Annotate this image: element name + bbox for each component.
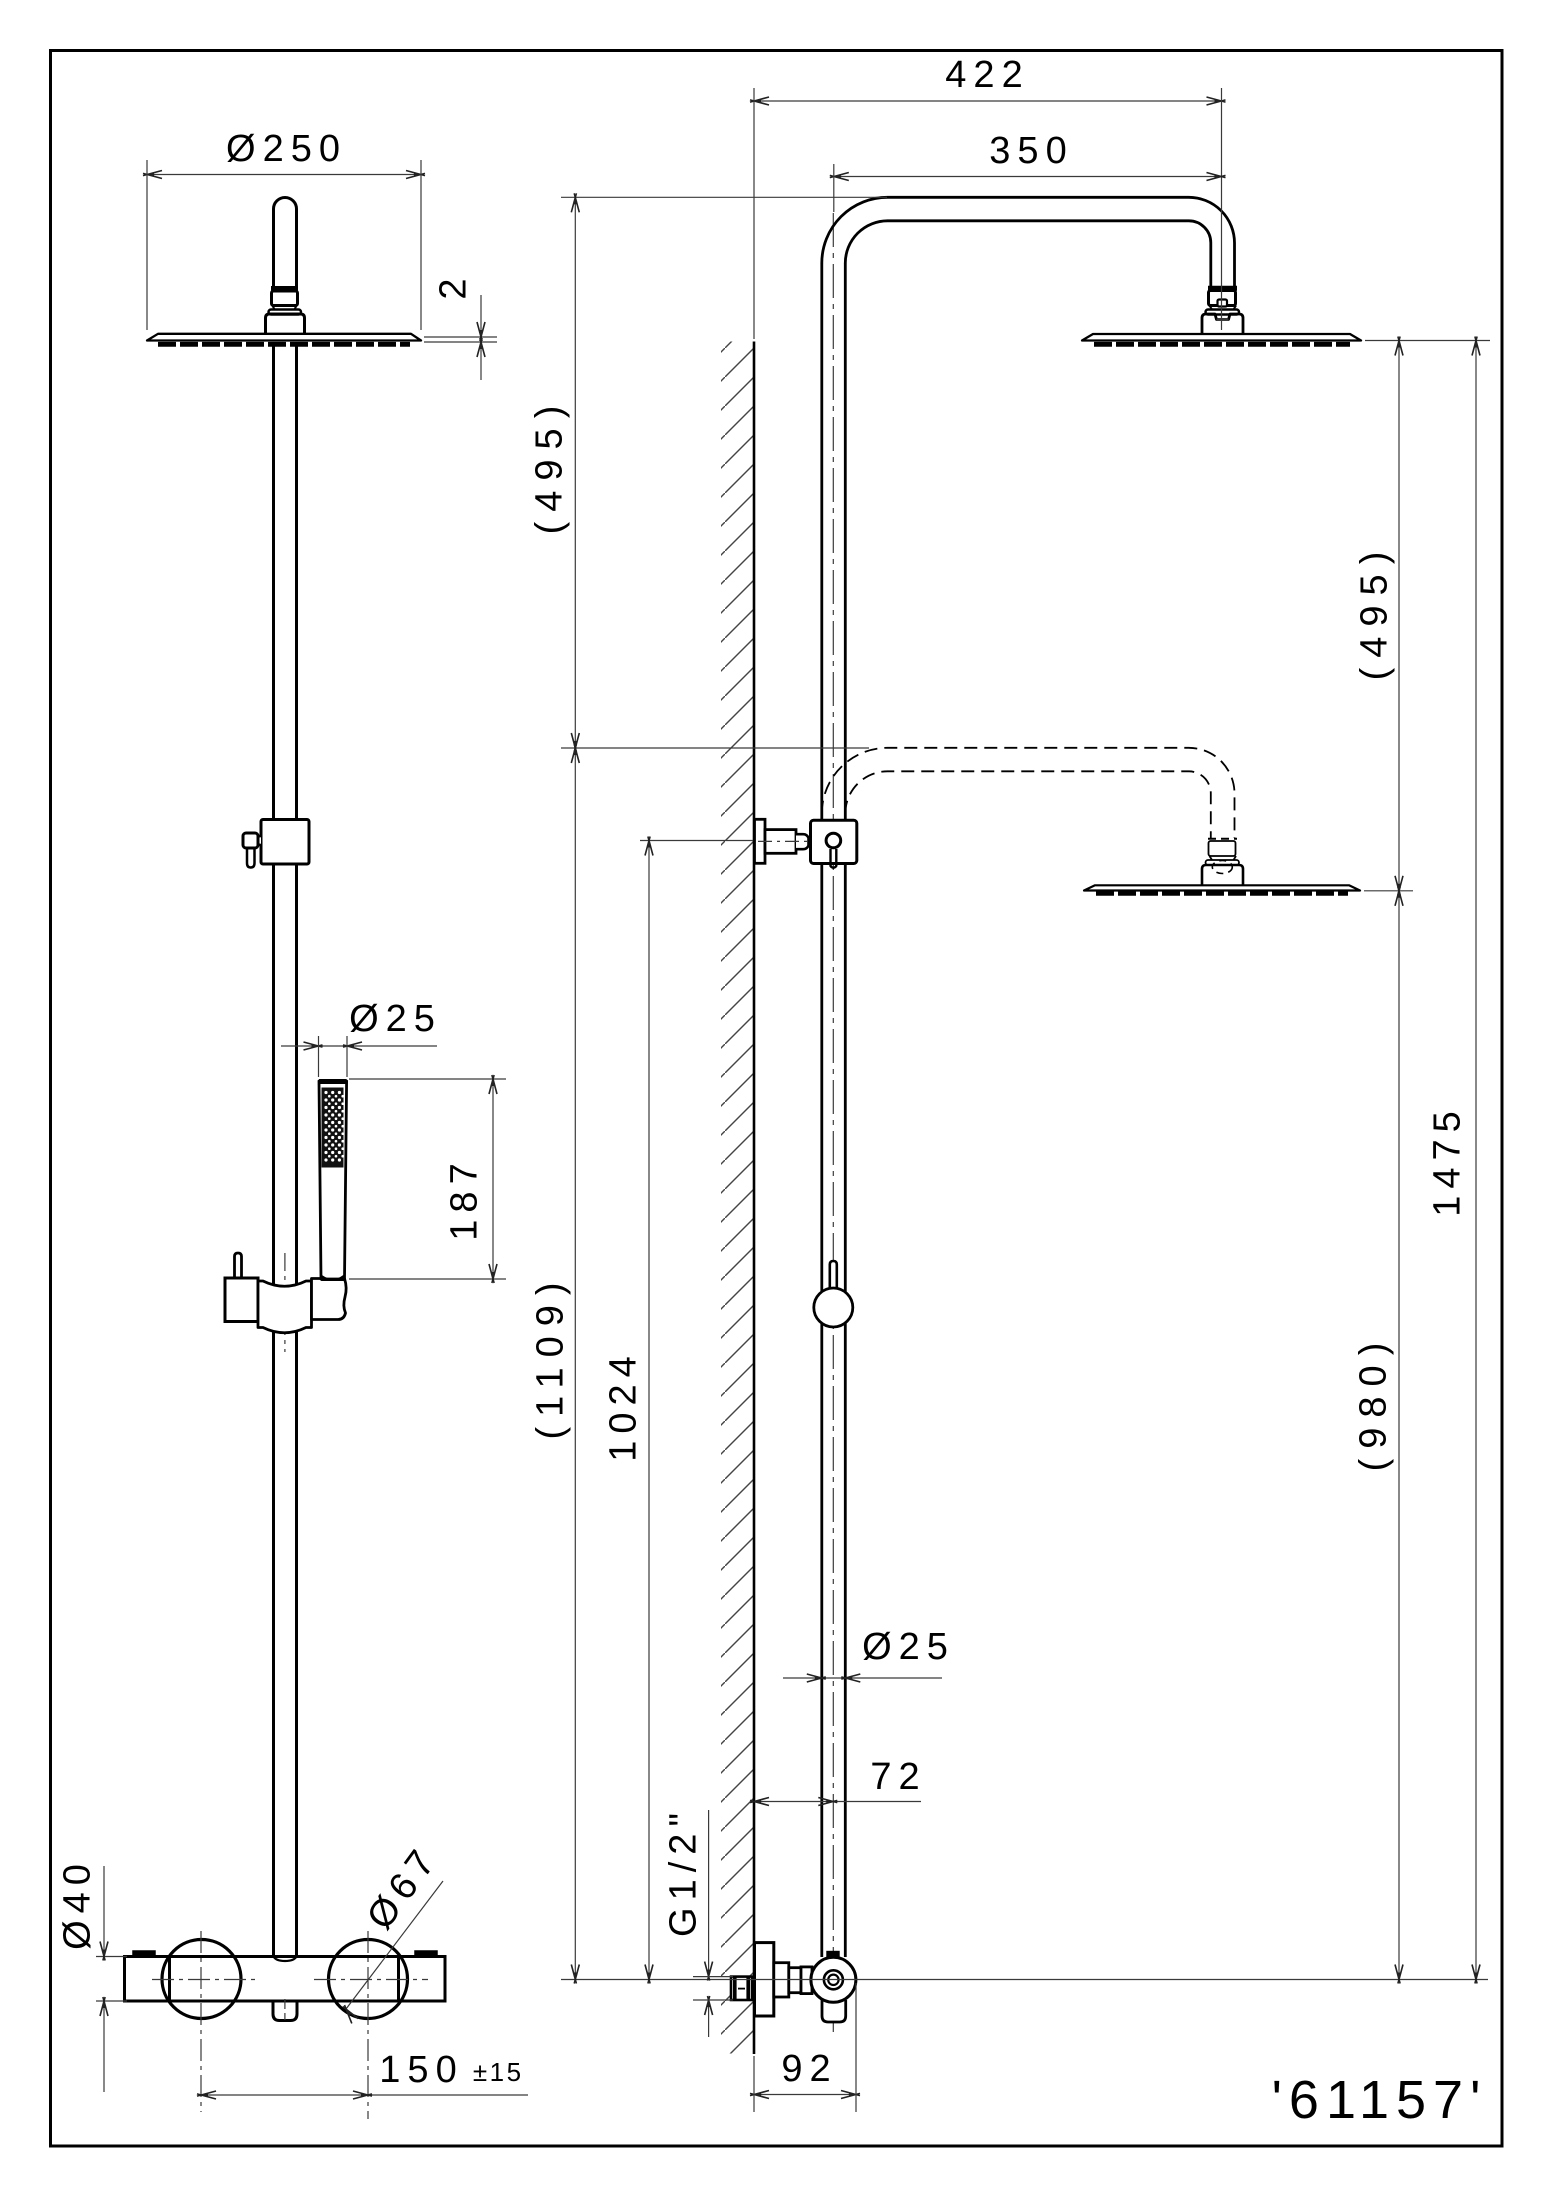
svg-text:Ø25: Ø25	[349, 998, 442, 1040]
svg-text:1475: 1475	[1427, 1104, 1469, 1217]
svg-text:2: 2	[433, 271, 475, 299]
svg-text:72: 72	[870, 1756, 926, 1798]
svg-text:150: 150	[379, 2049, 463, 2091]
svg-text:(495): (495)	[1354, 542, 1396, 681]
svg-text:1024: 1024	[603, 1349, 645, 1462]
svg-text:187: 187	[444, 1156, 486, 1240]
svg-text:350: 350	[989, 130, 1073, 172]
svg-text:Ø40: Ø40	[57, 1857, 99, 1950]
svg-text:Ø25: Ø25	[862, 1626, 955, 1668]
svg-text:92: 92	[781, 2048, 837, 2090]
svg-text:'61157': '61157'	[1272, 2070, 1488, 2130]
svg-text:Ø250: Ø250	[226, 128, 347, 170]
svg-text:422: 422	[945, 54, 1029, 96]
svg-text:(1109): (1109)	[530, 1272, 572, 1439]
svg-text:(495): (495)	[529, 396, 571, 535]
svg-text:±15: ±15	[473, 2057, 524, 2087]
svg-text:G1/2": G1/2"	[663, 1806, 705, 1937]
svg-text:(980): (980)	[1353, 1333, 1395, 1472]
